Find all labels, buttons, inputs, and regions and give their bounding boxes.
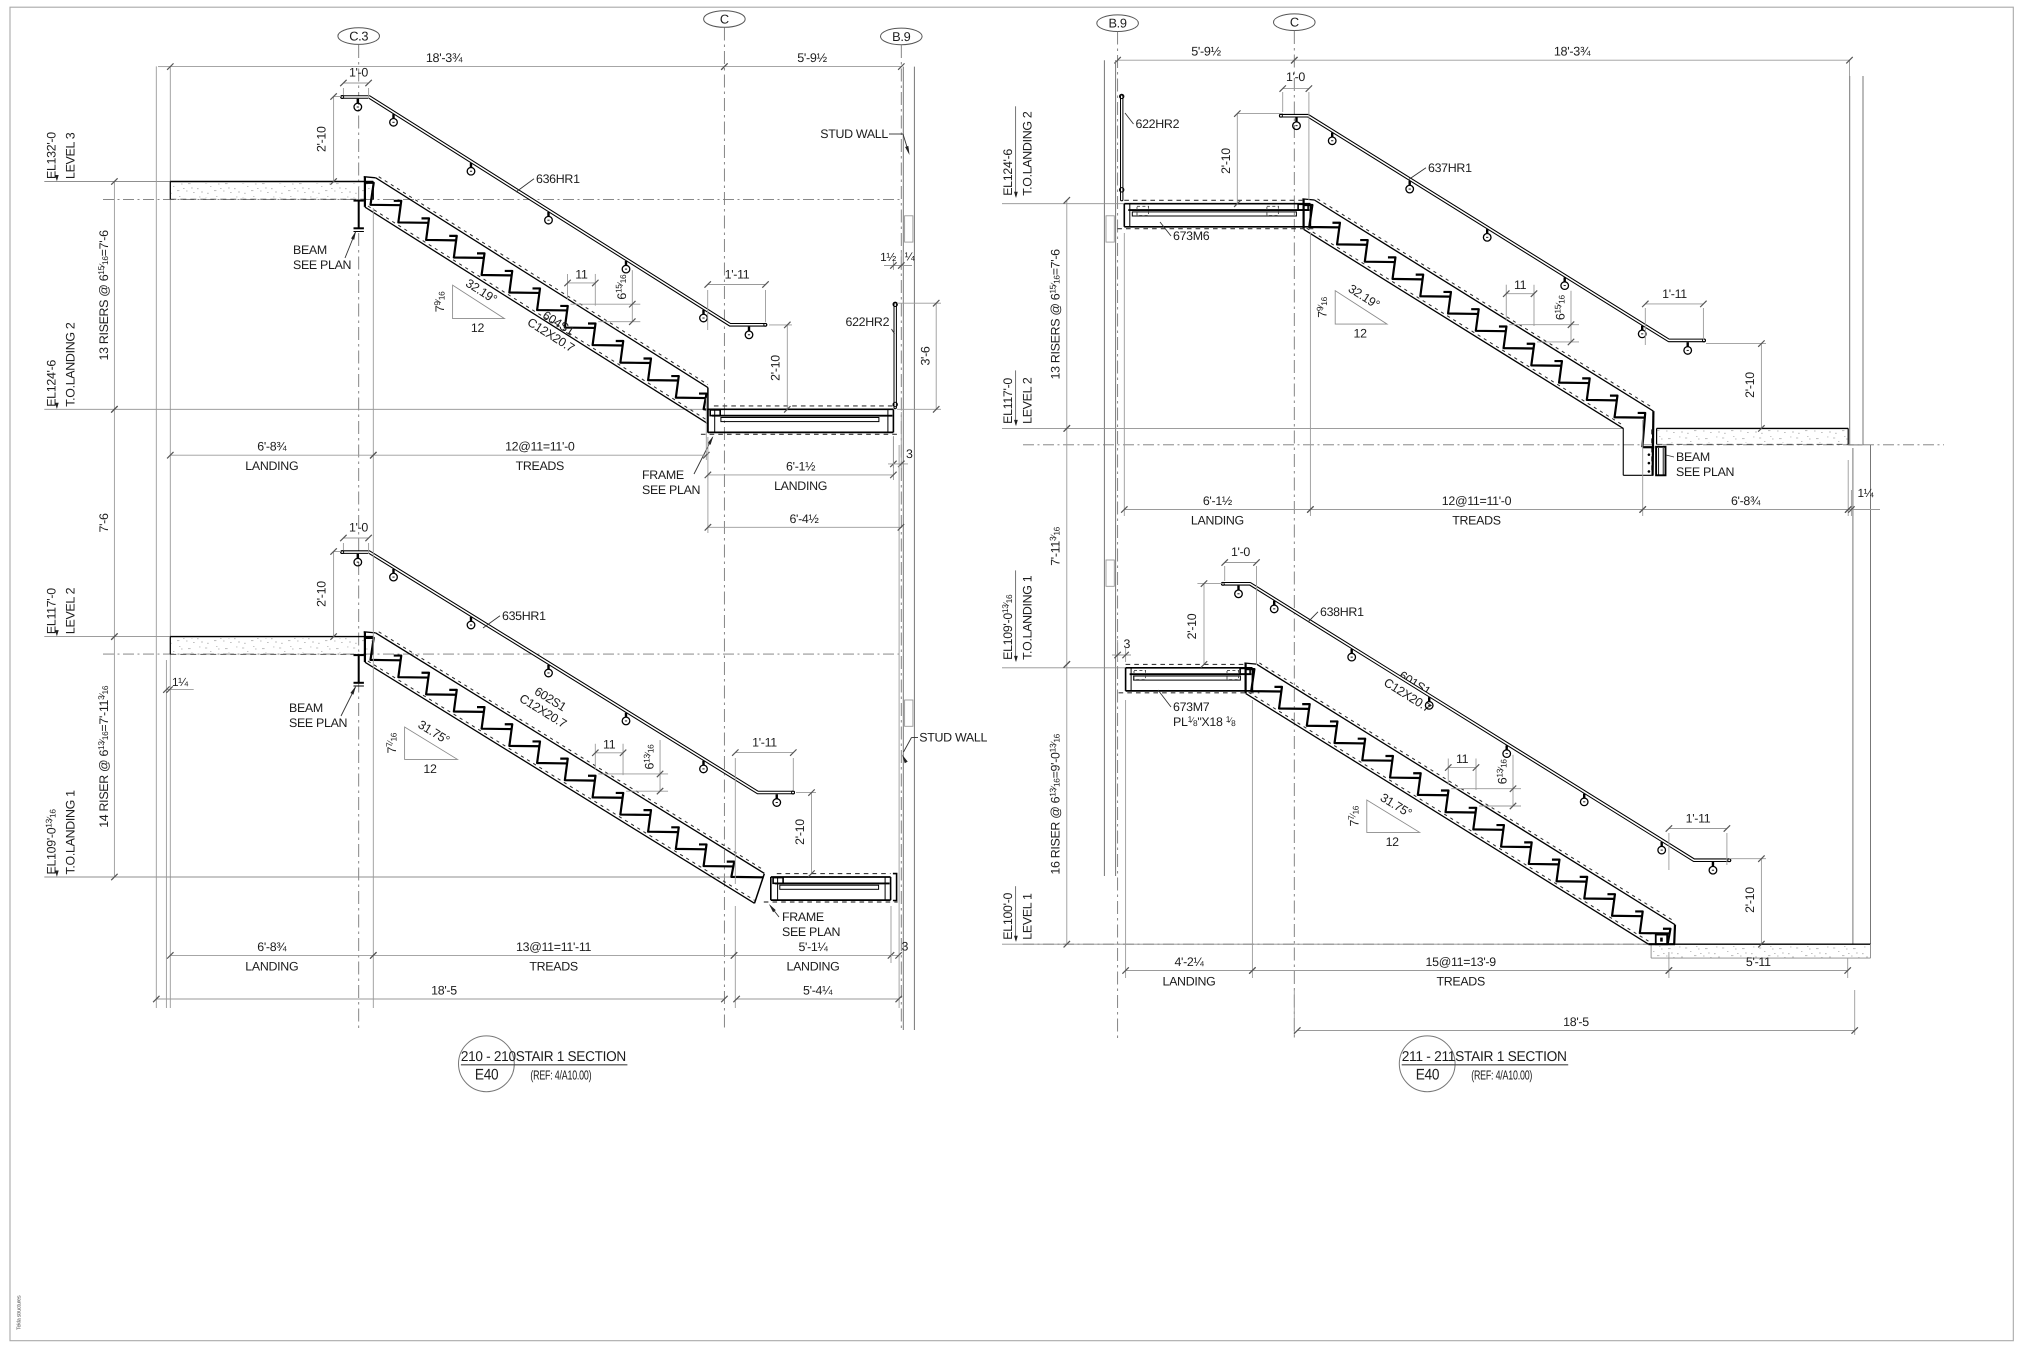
- svg-text:2'-10: 2'-10: [1185, 613, 1199, 639]
- svg-text:Tekla structures: Tekla structures: [16, 1295, 23, 1330]
- svg-text:5'-1¼: 5'-1¼: [798, 940, 828, 954]
- svg-text:13 RISERS @ 615⁄16​=7'-6: 13 RISERS @ 615⁄16​=7'-6: [96, 230, 111, 361]
- svg-text:LEVEL 3: LEVEL 3: [64, 132, 78, 179]
- svg-text:622HR2: 622HR2: [846, 315, 890, 329]
- svg-text:FRAME: FRAME: [782, 910, 824, 924]
- svg-text:B.9: B.9: [892, 29, 910, 44]
- svg-text:636HR1: 636HR1: [536, 172, 580, 186]
- svg-text:T.O.LANDING 2: T.O.LANDING 2: [64, 322, 78, 407]
- svg-text:6'-8¾: 6'-8¾: [257, 440, 287, 454]
- svg-text:5'-9½: 5'-9½: [797, 51, 827, 65]
- svg-text:EL132'-0: EL132'-0: [45, 132, 59, 179]
- svg-text:16 RISER @ 613⁄16​=9'-013⁄16​: 16 RISER @ 613⁄16​=9'-013⁄16​: [1047, 733, 1062, 874]
- svg-text:STUD WALL: STUD WALL: [820, 127, 888, 141]
- svg-text:1'-11: 1'-11: [725, 268, 750, 282]
- svg-text:1¼: 1¼: [172, 675, 188, 689]
- svg-text:1'-11: 1'-11: [1662, 287, 1687, 301]
- svg-text:SEE PLAN: SEE PLAN: [289, 716, 347, 730]
- svg-text:LEVEL 2: LEVEL 2: [1021, 377, 1035, 424]
- svg-text:E40: E40: [475, 1066, 499, 1083]
- svg-text:12: 12: [471, 321, 485, 335]
- svg-text:(REF: 4/A10.00): (REF: 4/A10.00): [1471, 1067, 1532, 1082]
- svg-text:BEAM: BEAM: [1676, 450, 1710, 464]
- svg-text:TREADS: TREADS: [516, 459, 564, 473]
- svg-text:18'-3¾: 18'-3¾: [1554, 45, 1591, 59]
- svg-text:638HR1: 638HR1: [1320, 605, 1364, 619]
- svg-text:SEE PLAN: SEE PLAN: [293, 258, 351, 272]
- svg-text:LANDING: LANDING: [1163, 975, 1216, 989]
- svg-text:EL100'-0: EL100'-0: [1001, 892, 1015, 939]
- svg-text:6'-8¾: 6'-8¾: [257, 940, 287, 954]
- svg-text:5'-4¼: 5'-4¼: [803, 984, 833, 998]
- svg-text:EL117'-0: EL117'-0: [1001, 378, 1015, 424]
- svg-text:11: 11: [1514, 278, 1527, 292]
- svg-text:TREADS: TREADS: [1436, 975, 1484, 989]
- svg-text:2'-10: 2'-10: [769, 355, 783, 381]
- svg-text:C: C: [720, 11, 729, 26]
- svg-text:1'-11: 1'-11: [752, 736, 777, 750]
- svg-text:LEVEL 1: LEVEL 1: [1021, 893, 1035, 940]
- svg-text:637HR1: 637HR1: [1428, 161, 1472, 175]
- svg-text:T.O.LANDING 2: T.O.LANDING 2: [1021, 111, 1035, 196]
- svg-text:6'-1½: 6'-1½: [1203, 494, 1232, 508]
- svg-text:1'-11: 1'-11: [1686, 812, 1711, 826]
- svg-text:EL124'-6: EL124'-6: [1001, 149, 1015, 196]
- svg-text:3: 3: [902, 939, 909, 953]
- svg-text:C.3: C.3: [349, 29, 368, 44]
- svg-text:TREADS: TREADS: [1452, 514, 1500, 528]
- svg-text:BEAM: BEAM: [293, 243, 327, 257]
- svg-text:SEE PLAN: SEE PLAN: [1676, 465, 1734, 479]
- svg-text:LANDING: LANDING: [774, 479, 827, 493]
- svg-text:2'-10: 2'-10: [1743, 372, 1757, 398]
- svg-text:EL109'-013⁄16​: EL109'-013⁄16​: [43, 809, 58, 875]
- svg-text:2'-10: 2'-10: [1219, 148, 1233, 174]
- svg-text:18'-5: 18'-5: [1563, 1015, 1589, 1029]
- svg-text:12@11=11'-0: 12@11=11'-0: [505, 440, 575, 454]
- svg-text:12: 12: [1354, 327, 1368, 341]
- svg-text:5'-9½: 5'-9½: [1191, 45, 1221, 59]
- svg-text:LANDING: LANDING: [1191, 514, 1244, 528]
- svg-text:SEE PLAN: SEE PLAN: [642, 483, 700, 497]
- svg-text:C: C: [1290, 15, 1299, 30]
- svg-text:1'-0: 1'-0: [349, 521, 368, 535]
- svg-text:2'-10: 2'-10: [793, 819, 807, 845]
- svg-text:FRAME: FRAME: [642, 468, 684, 482]
- svg-text:18'-5: 18'-5: [431, 984, 457, 998]
- svg-text:1½: 1½: [880, 250, 896, 264]
- svg-text:¼: ¼: [905, 250, 915, 264]
- svg-text:6'-4½: 6'-4½: [789, 512, 818, 526]
- svg-text:LANDING: LANDING: [787, 959, 840, 973]
- svg-text:EL117'-0: EL117'-0: [45, 588, 59, 634]
- svg-text:LANDING: LANDING: [245, 959, 298, 973]
- svg-text:1'-0: 1'-0: [349, 66, 368, 80]
- svg-text:5'-11: 5'-11: [1746, 955, 1771, 969]
- svg-text:6'-1½: 6'-1½: [786, 459, 815, 473]
- svg-text:3'-6: 3'-6: [919, 346, 933, 365]
- svg-text:2'-10: 2'-10: [314, 126, 328, 152]
- svg-text:T.O.LANDING 1: T.O.LANDING 1: [1021, 575, 1035, 660]
- svg-text:11: 11: [1456, 752, 1469, 766]
- svg-text:211 - 211STAIR 1 SECTION: 211 - 211STAIR 1 SECTION: [1402, 1049, 1567, 1065]
- svg-text:1'-0: 1'-0: [1231, 545, 1250, 559]
- svg-text:15@11=13'-9: 15@11=13'-9: [1426, 955, 1497, 969]
- svg-text:1'-0: 1'-0: [1286, 70, 1305, 84]
- svg-text:11: 11: [575, 267, 588, 281]
- svg-text:4'-2¼: 4'-2¼: [1174, 955, 1204, 969]
- svg-text:18'-3¾: 18'-3¾: [426, 51, 463, 65]
- svg-text:STUD WALL: STUD WALL: [919, 731, 987, 745]
- svg-text:14 RISER @ 613⁄16​=7'-113⁄16​: 14 RISER @ 613⁄16​=7'-113⁄16​: [96, 685, 111, 828]
- svg-text:673M7: 673M7: [1173, 700, 1210, 714]
- svg-text:3: 3: [906, 447, 913, 461]
- svg-text:SEE PLAN: SEE PLAN: [782, 925, 840, 939]
- svg-text:3: 3: [1124, 637, 1131, 651]
- svg-text:T.O.LANDING 1: T.O.LANDING 1: [64, 790, 78, 875]
- svg-text:12: 12: [423, 762, 437, 776]
- svg-text:E40: E40: [1416, 1066, 1440, 1083]
- svg-text:635HR1: 635HR1: [502, 609, 546, 623]
- svg-text:2'-10: 2'-10: [314, 581, 328, 607]
- svg-text:12@11=11'-0: 12@11=11'-0: [1442, 494, 1512, 508]
- svg-text:13@11=11'-11: 13@11=11'-11: [516, 940, 591, 954]
- svg-text:673M6: 673M6: [1173, 229, 1210, 243]
- svg-text:TREADS: TREADS: [529, 959, 577, 973]
- svg-text:12: 12: [1386, 835, 1400, 849]
- svg-text:2'-10: 2'-10: [1743, 887, 1757, 913]
- svg-text:BEAM: BEAM: [289, 701, 323, 715]
- svg-text:13 RISERS @ 615⁄16​=7'-6: 13 RISERS @ 615⁄16​=7'-6: [1047, 249, 1062, 380]
- svg-text:EL109'-013⁄16​: EL109'-013⁄16​: [1000, 594, 1015, 660]
- svg-text:6'-8¾: 6'-8¾: [1731, 494, 1761, 508]
- svg-text:622HR2: 622HR2: [1136, 117, 1180, 131]
- svg-text:(REF: 4/A10.00): (REF: 4/A10.00): [530, 1067, 591, 1082]
- svg-text:7'-6: 7'-6: [97, 513, 111, 532]
- svg-text:11: 11: [603, 737, 616, 751]
- svg-text:EL124'-6: EL124'-6: [45, 360, 59, 407]
- svg-text:1¼: 1¼: [1858, 486, 1874, 500]
- svg-text:210 - 210STAIR 1 SECTION: 210 - 210STAIR 1 SECTION: [461, 1049, 626, 1065]
- svg-text:LEVEL 2: LEVEL 2: [64, 587, 78, 634]
- svg-text:LANDING: LANDING: [245, 459, 298, 473]
- svg-text:B.9: B.9: [1108, 16, 1126, 31]
